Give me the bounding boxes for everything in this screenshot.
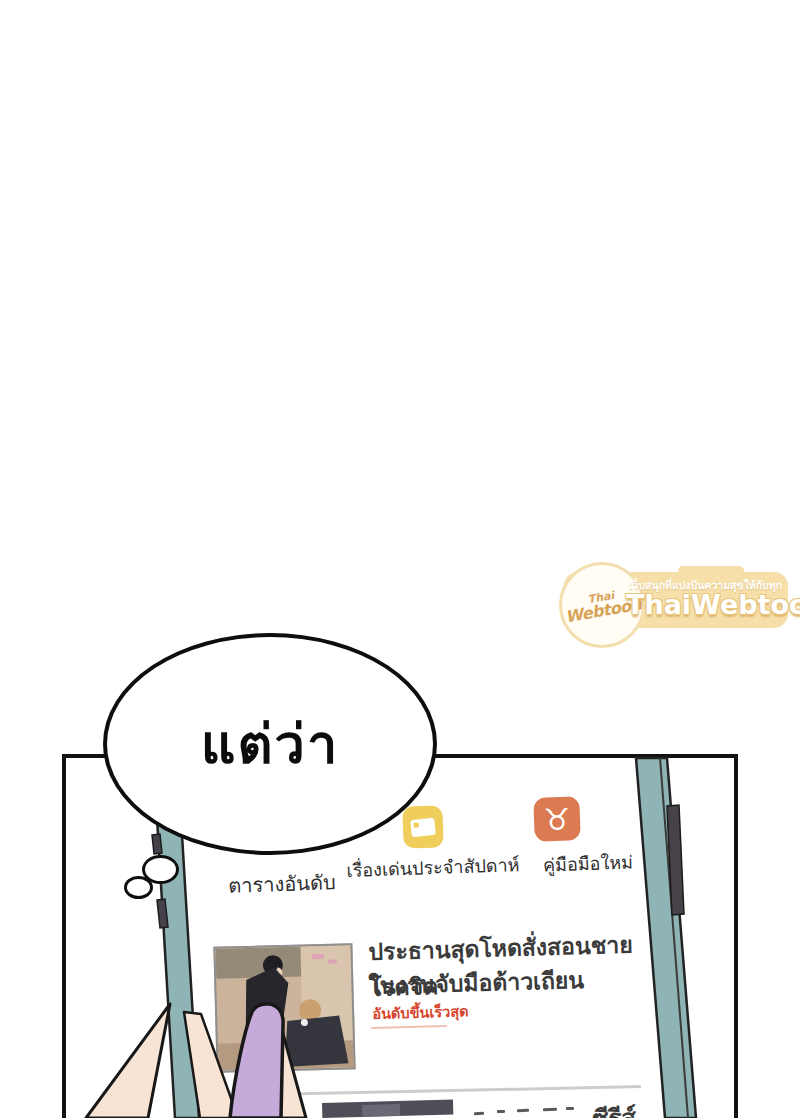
thought-trail-bubble-2 — [124, 876, 153, 899]
hand-wrist — [86, 1004, 170, 1118]
phone-and-hand-overlay — [0, 0, 800, 1118]
phone-left-button-1[interactable] — [152, 834, 162, 854]
thought-bubble-text: แต่ว่า — [201, 701, 340, 787]
thumb-sleeve — [230, 1004, 283, 1118]
phone-right-edge — [636, 758, 696, 1118]
thought-bubble: แต่ว่า — [103, 633, 437, 855]
comic-page: Thai Webtoon เว็บสนุกที่แบ่งปันความสุขให… — [0, 0, 800, 1118]
